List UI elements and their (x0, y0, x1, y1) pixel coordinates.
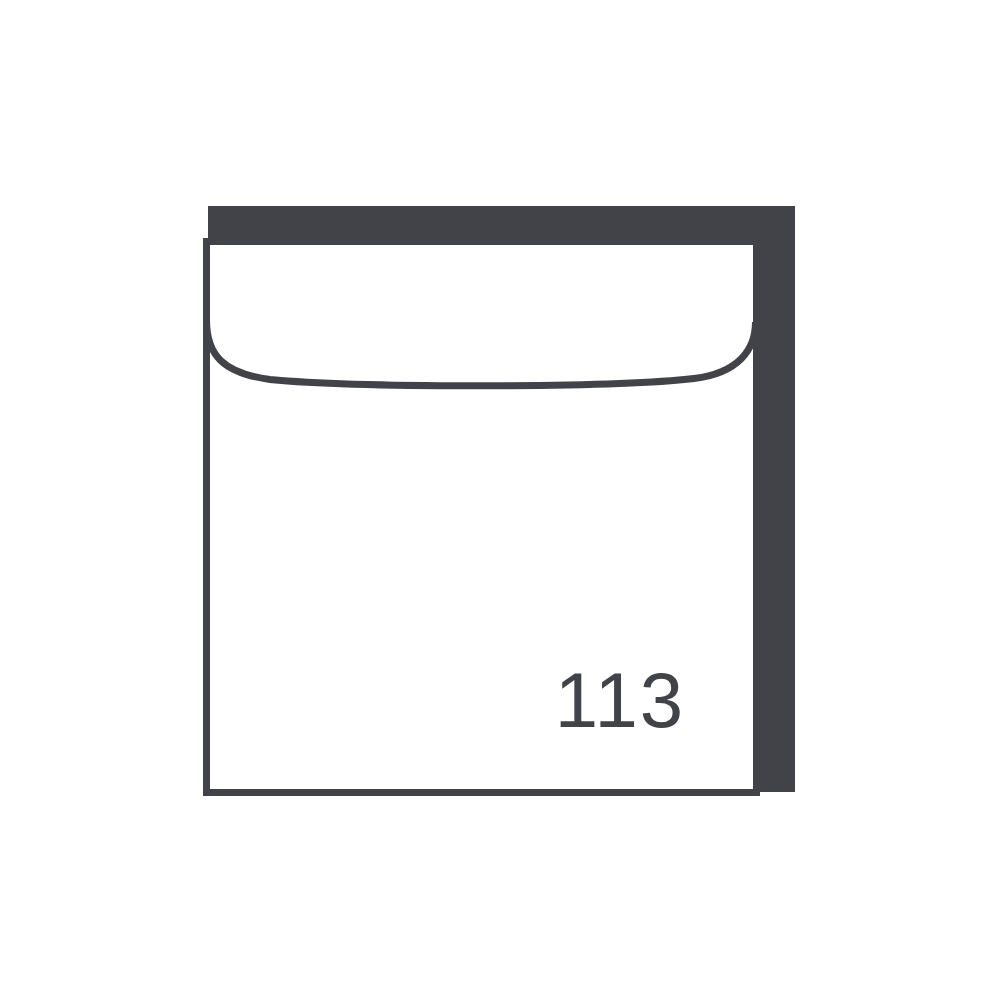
square-envelope-icon: 113 (0, 0, 1000, 1000)
envelope-illustration: 113 (0, 0, 1000, 1000)
envelope-number: 113 (555, 656, 685, 744)
